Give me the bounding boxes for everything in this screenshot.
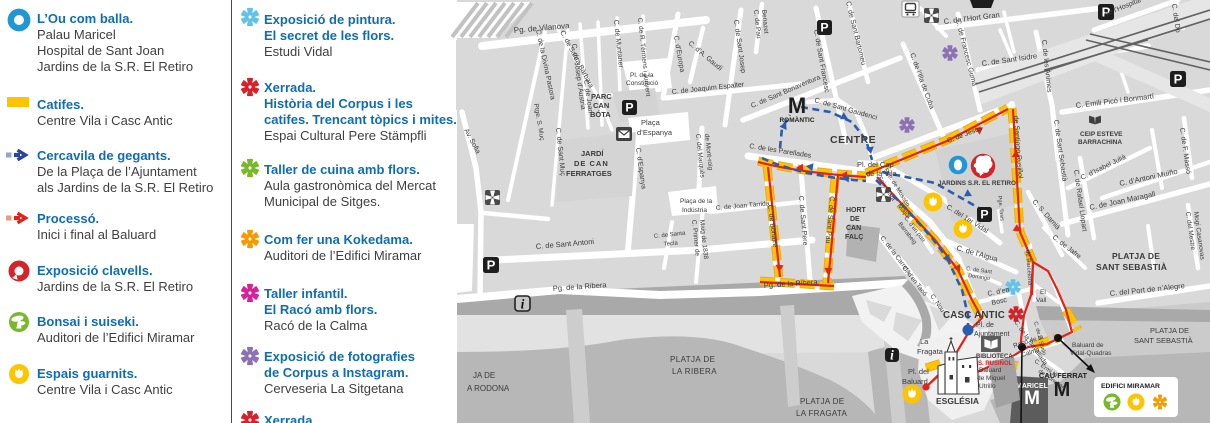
svg-text:EDIFICI MIRAMAR: EDIFICI MIRAMAR [1101,383,1160,390]
svg-text:CAN: CAN [846,225,861,232]
svg-text:FERRATGES: FERRATGES [566,169,612,178]
svg-text:M: M [1024,388,1040,409]
svg-text:CAN: CAN [593,101,609,110]
svg-text:CEIP ESTEVE: CEIP ESTEVE [1080,131,1123,138]
svg-text:Plaça de la: Plaça de la [680,198,713,205]
svg-text:Baluard de: Baluard de [1072,342,1104,349]
svg-text:BÓTA: BÓTA [590,110,611,119]
svg-text:P: P [820,21,828,35]
svg-text:LA FRAGATA: LA FRAGATA [796,409,848,418]
svg-text:PLATJA DE: PLATJA DE [800,397,844,406]
svg-text:d’Espanya: d’Espanya [637,128,673,137]
svg-text:ESGLÉSIA: ESGLÉSIA [936,396,979,406]
svg-text:Utrillo: Utrillo [979,383,996,390]
svg-text:BARRACHINA: BARRACHINA [1078,139,1122,146]
svg-text:PLATJA DE: PLATJA DE [670,355,715,364]
svg-text:P: P [980,208,988,222]
svg-text:El: El [1040,289,1046,296]
svg-text:Indústria: Indústria [682,207,707,214]
svg-text:de Miquel: de Miquel [977,375,1006,382]
svg-text:DE CAN: DE CAN [574,159,609,168]
svg-text:Constitució: Constitució [626,80,659,87]
svg-text:Pl. del: Pl. del [908,367,929,376]
svg-text:M: M [788,93,806,118]
svg-text:Baluard: Baluard [902,377,928,386]
svg-text:JA DE: JA DE [473,371,495,380]
svg-text:Pl. de la: Pl. de la [630,72,654,79]
svg-text:La: La [920,337,929,346]
svg-text:JARDINS S.R. EL RETIRO: JARDINS S.R. EL RETIRO [938,180,1016,187]
svg-text:ROMÀNTIC: ROMÀNTIC [779,115,814,124]
svg-text:Vidal-Quadras: Vidal-Quadras [1070,350,1112,357]
svg-text:P: P [1174,71,1183,86]
svg-text:PLATJA DE: PLATJA DE [1112,251,1160,261]
svg-text:Plaça: Plaça [641,118,661,127]
svg-text:Pl. del Cap: Pl. del Cap [857,160,894,169]
svg-text:P: P [625,101,633,115]
svg-text:Fragata: Fragata [917,347,944,356]
svg-text:HORT: HORT [846,207,867,214]
svg-text:de la Vila: de la Vila [866,169,898,178]
svg-text:PARC: PARC [591,92,612,101]
svg-text:P: P [487,257,496,272]
svg-text:CASC ANTIC: CASC ANTIC [943,310,1005,321]
svg-text:Pl. de: Pl. de [976,322,994,329]
svg-text:Ajuntament: Ajuntament [974,331,1009,338]
svg-text:A RODONA: A RODONA [467,384,510,393]
svg-text:BIBLIOTECA: BIBLIOTECA [976,354,1013,360]
svg-text:PLATJA DE: PLATJA DE [1150,326,1189,335]
svg-text:SANT SEBASTIÀ: SANT SEBASTIÀ [1134,336,1193,345]
svg-text:SANT SEBASTIÀ: SANT SEBASTIÀ [1096,262,1167,272]
svg-text:LA RIBERA: LA RIBERA [672,367,717,376]
svg-text:DE: DE [850,216,860,223]
svg-text:FALÇ: FALÇ [845,234,863,241]
svg-text:Vall: Vall [1036,297,1047,304]
svg-text:JARDÍ: JARDÍ [581,149,604,158]
svg-text:i: i [890,347,894,362]
svg-text:Baluard: Baluard [979,367,1002,374]
svg-text:S. RUSIÑOL: S. RUSIÑOL [978,360,1013,367]
svg-text:CENTRE: CENTRE [830,134,876,146]
svg-text:i: i [521,297,525,312]
